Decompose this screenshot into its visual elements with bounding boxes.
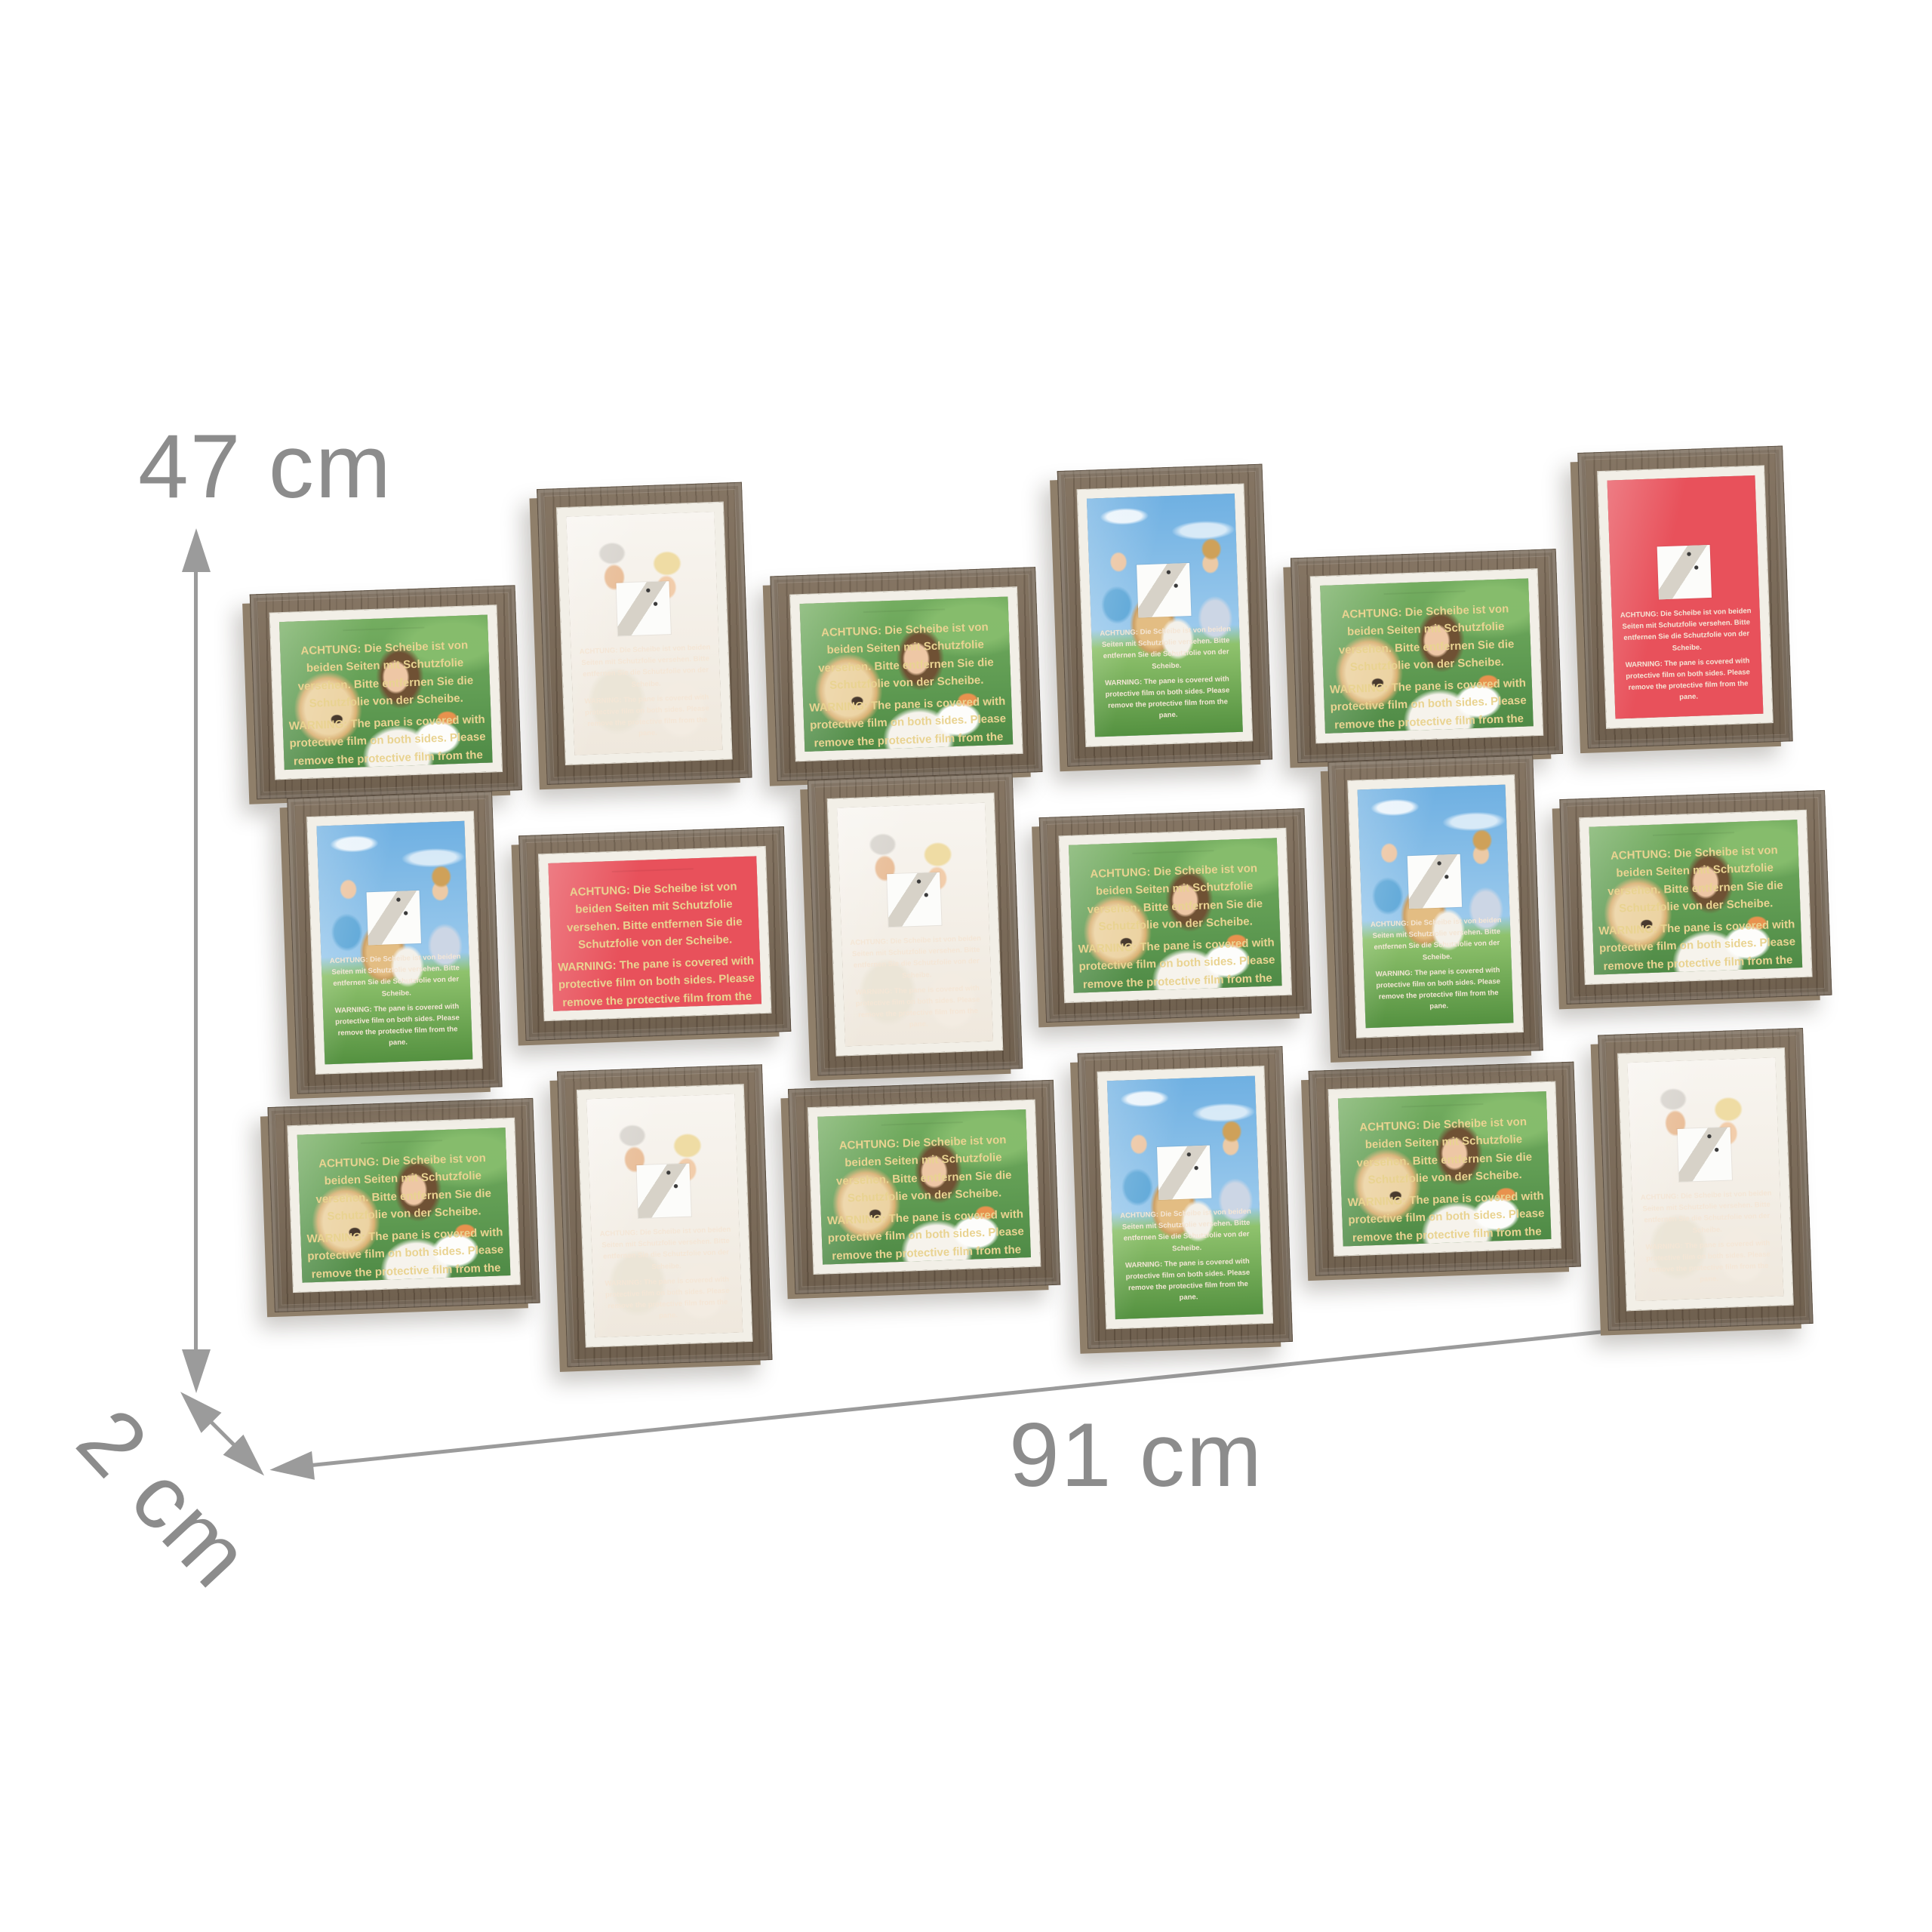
- paper-insert: [1678, 1128, 1732, 1182]
- frame-mat: ACHTUNG: Die Scheibe ist von beiden Seit…: [1598, 466, 1773, 728]
- frame-photo: ACHTUNG: Die Scheibe ist von beiden Seit…: [1338, 1091, 1552, 1247]
- frame-r3-c5-pets: ACHTUNG: Die Scheibe ist von beiden Seit…: [1309, 1062, 1581, 1276]
- paper-insert: [1133, 851, 1213, 854]
- frame-mat: ACHTUNG: Die Scheibe ist von beiden Seit…: [1311, 569, 1543, 743]
- paper-insert: [1654, 832, 1734, 835]
- frame-photo: ACHTUNG: Die Scheibe ist von beiden Seit…: [1358, 785, 1514, 1029]
- paper-insert: [887, 872, 941, 927]
- warning-text-en: WARNING: The pane is covered with protec…: [843, 982, 992, 1033]
- warning-text-de: ACHTUNG: Die Scheibe ist von beiden Seit…: [1590, 841, 1801, 918]
- frame-mat: ACHTUNG: Die Scheibe ist von beiden Seit…: [1328, 1082, 1560, 1256]
- frame-mat: ACHTUNG: Die Scheibe ist von beiden Seit…: [270, 605, 502, 779]
- frame-photo: ACHTUNG: Die Scheibe ist von beiden Seit…: [566, 512, 722, 755]
- frame-photo: ACHTUNG: Die Scheibe ist von beiden Seit…: [1627, 1057, 1783, 1301]
- warning-text-de: ACHTUNG: Die Scheibe ist von beiden Seit…: [1339, 1112, 1549, 1190]
- paper-insert: [1157, 1146, 1211, 1200]
- paper-insert: [361, 1140, 441, 1143]
- warning-text-en: WARNING: The pane is covered with protec…: [1614, 654, 1763, 706]
- warning-text-en: WARNING: The pane is covered with protec…: [1341, 1187, 1551, 1247]
- warning-text-de: ACHTUNG: Die Scheibe ist von beiden Seit…: [801, 617, 1011, 695]
- warning-text-en: WARNING: The pane is covered with protec…: [803, 692, 1013, 752]
- warning-insert: ACHTUNG: Die Scheibe ist von beiden Seit…: [1589, 820, 1803, 975]
- frame-r1-c1-pets: ACHTUNG: Die Scheibe ist von beiden Seit…: [250, 585, 522, 799]
- warning-text-en: WARNING: The pane is covered with protec…: [593, 1273, 743, 1324]
- frame-photo: ACHTUNG: Die Scheibe ist von beiden Seit…: [837, 803, 993, 1047]
- warning-text-en: WARNING: The pane is covered with protec…: [300, 1223, 510, 1283]
- warning-insert: ACHTUNG: Die Scheibe ist von beiden Seit…: [586, 1094, 743, 1338]
- frame-r2-c5-family: ACHTUNG: Die Scheibe ist von beiden Seit…: [1327, 755, 1543, 1057]
- frame-photo: ACHTUNG: Die Scheibe ist von beiden Seit…: [316, 821, 472, 1065]
- frame-r2-c2-red-insert: ACHTUNG: Die Scheibe ist von beiden Seit…: [518, 826, 791, 1041]
- warning-text-en: WARNING: The pane is covered with protec…: [1634, 1237, 1783, 1288]
- warning-text-en: WARNING: The pane is covered with protec…: [1072, 934, 1281, 993]
- frame-photo: ACHTUNG: Die Scheibe ist von beiden Seit…: [1320, 578, 1534, 734]
- frame-r1-c4-family: ACHTUNG: Die Scheibe ist von beiden Seit…: [1057, 464, 1273, 767]
- frame-r3-c2-couple: ACHTUNG: Die Scheibe ist von beiden Seit…: [557, 1064, 773, 1367]
- warning-insert: ACHTUNG: Die Scheibe ist von beiden Seit…: [837, 803, 993, 1047]
- frame-mat: ACHTUNG: Die Scheibe ist von beiden Seit…: [1618, 1048, 1793, 1310]
- warning-text-de: ACHTUNG: Die Scheibe ist von beiden Seit…: [280, 636, 491, 714]
- frame-r2-c3-couple: ACHTUNG: Die Scheibe ist von beiden Seit…: [808, 773, 1023, 1075]
- frame-photo: ACHTUNG: Die Scheibe ist von beiden Seit…: [297, 1128, 511, 1283]
- frame-r3-c6-couple: ACHTUNG: Die Scheibe ist von beiden Seit…: [1598, 1028, 1814, 1331]
- frame-r3-c1-pets: ACHTUNG: Die Scheibe ist von beiden Seit…: [267, 1098, 540, 1312]
- frame-photo: ACHTUNG: Die Scheibe ist von beiden Seit…: [1589, 820, 1803, 975]
- product-screenshot: 47 cm 2 cm 91 cm ACHTUNG: Die Scheibe is…: [0, 0, 1932, 1932]
- warning-text-en: WARNING: The pane is covered with protec…: [1364, 964, 1513, 1015]
- warning-text-de: ACHTUNG: Die Scheibe ist von beiden Seit…: [1112, 1205, 1261, 1257]
- collage-frame: ACHTUNG: Die Scheibe ist von beiden Seit…: [249, 445, 1841, 1378]
- frame-r2-c1-family: ACHTUNG: Die Scheibe ist von beiden Seit…: [287, 791, 503, 1094]
- frame-r3-c3-pets: ACHTUNG: Die Scheibe ist von beiden Seit…: [788, 1080, 1060, 1294]
- frame-r3-c4-family: ACHTUNG: Die Scheibe ist von beiden Seit…: [1078, 1046, 1294, 1349]
- frame-r1-c2-couple: ACHTUNG: Die Scheibe ist von beiden Seit…: [537, 482, 752, 785]
- warning-text-de: ACHTUNG: Die Scheibe ist von beiden Seit…: [841, 933, 991, 984]
- warning-insert: ACHTUNG: Die Scheibe ist von beiden Seit…: [800, 596, 1014, 752]
- warning-text-en: WARNING: The pane is covered with protec…: [1592, 915, 1802, 975]
- warning-text-en: WARNING: The pane is covered with protec…: [323, 1000, 472, 1051]
- paper-insert: [1657, 545, 1712, 599]
- warning-text-en: WARNING: The pane is covered with protec…: [821, 1205, 1031, 1265]
- warning-insert: ACHTUNG: Die Scheibe ist von beiden Seit…: [1107, 1075, 1263, 1319]
- paper-insert: [343, 628, 423, 631]
- frame-mat: ACHTUNG: Die Scheibe ist von beiden Seit…: [1078, 484, 1253, 746]
- frame-photo: ACHTUNG: Die Scheibe ist von beiden Seit…: [817, 1109, 1031, 1265]
- frame-r2-c6-pets: ACHTUNG: Die Scheibe ist von beiden Seit…: [1559, 790, 1832, 1004]
- warning-insert: ACHTUNG: Die Scheibe ist von beiden Seit…: [279, 615, 493, 771]
- warning-text-de: ACHTUNG: Die Scheibe ist von beiden Seit…: [1069, 859, 1280, 937]
- paper-insert: [636, 1164, 691, 1218]
- paper-insert: [367, 891, 421, 945]
- warning-insert: ACHTUNG: Die Scheibe ist von beiden Seit…: [548, 856, 761, 1011]
- frame-photo: ACHTUNG: Die Scheibe ist von beiden Seit…: [548, 856, 761, 1011]
- warning-text-de: ACHTUNG: Die Scheibe ist von beiden Seit…: [818, 1131, 1029, 1208]
- frame-mat: ACHTUNG: Die Scheibe ist von beiden Seit…: [1097, 1066, 1272, 1328]
- warning-text-de: ACHTUNG: Die Scheibe ist von beiden Seit…: [1091, 623, 1241, 675]
- warning-insert: ACHTUNG: Die Scheibe ist von beiden Seit…: [1087, 494, 1243, 737]
- warning-insert: ACHTUNG: Die Scheibe ist von beiden Seit…: [1607, 475, 1764, 719]
- paper-insert: [1402, 1104, 1482, 1107]
- paper-insert: [864, 609, 944, 612]
- frame-photo: ACHTUNG: Die Scheibe ist von beiden Seit…: [800, 596, 1014, 752]
- warning-insert: ACHTUNG: Die Scheibe ist von beiden Seit…: [1338, 1091, 1552, 1247]
- warning-insert: ACHTUNG: Die Scheibe ist von beiden Seit…: [1358, 785, 1514, 1029]
- height-dimension-arrow: [194, 571, 198, 1351]
- frame-photo: ACHTUNG: Die Scheibe ist von beiden Seit…: [1069, 838, 1282, 993]
- warning-text-de: ACHTUNG: Die Scheibe ist von beiden Seit…: [321, 951, 470, 1002]
- frame-photo: ACHTUNG: Die Scheibe ist von beiden Seit…: [1107, 1075, 1263, 1319]
- paper-insert: [616, 581, 670, 635]
- warning-text-de: ACHTUNG: Die Scheibe ist von beiden Seit…: [549, 877, 759, 955]
- warning-insert: ACHTUNG: Die Scheibe ist von beiden Seit…: [817, 1109, 1031, 1265]
- frame-r1-c5-pets: ACHTUNG: Die Scheibe ist von beiden Seit…: [1291, 549, 1563, 763]
- warning-insert: ACHTUNG: Die Scheibe ist von beiden Seit…: [566, 512, 722, 755]
- frame-mat: ACHTUNG: Die Scheibe ist von beiden Seit…: [1060, 829, 1291, 1002]
- frame-mat: ACHTUNG: Die Scheibe ist von beiden Seit…: [828, 793, 1003, 1055]
- frame-photo: ACHTUNG: Die Scheibe ist von beiden Seit…: [586, 1094, 743, 1338]
- frame-mat: ACHTUNG: Die Scheibe ist von beiden Seit…: [557, 503, 732, 764]
- warning-text-en: WARNING: The pane is covered with protec…: [573, 691, 722, 743]
- warning-insert: ACHTUNG: Die Scheibe ist von beiden Seit…: [297, 1128, 511, 1283]
- warning-text-de: ACHTUNG: Die Scheibe ist von beiden Seit…: [1362, 915, 1512, 966]
- warning-text-en: WARNING: The pane is covered with protec…: [552, 952, 761, 1011]
- depth-dimension-arrow: [209, 1420, 235, 1447]
- warning-insert: ACHTUNG: Die Scheibe ist von beiden Seit…: [1069, 838, 1282, 993]
- warning-insert: ACHTUNG: Die Scheibe ist von beiden Seit…: [1627, 1057, 1783, 1301]
- warning-insert: ACHTUNG: Die Scheibe ist von beiden Seit…: [316, 821, 472, 1065]
- depth-dimension-label: 2 cm: [62, 1393, 266, 1603]
- paper-insert: [1137, 563, 1191, 617]
- width-dimension-label: 91 cm: [1009, 1410, 1263, 1500]
- frame-photo: ACHTUNG: Die Scheibe ist von beiden Seit…: [1607, 475, 1764, 719]
- warning-text-en: WARNING: The pane is covered with protec…: [1324, 674, 1534, 734]
- warning-insert: ACHTUNG: Die Scheibe ist von beiden Seit…: [1320, 578, 1534, 734]
- warning-text-de: ACHTUNG: Die Scheibe ist von beiden Seit…: [298, 1149, 509, 1226]
- warning-text-en: WARNING: The pane is covered with protec…: [1093, 673, 1242, 724]
- frame-mat: ACHTUNG: Die Scheibe ist von beiden Seit…: [1348, 775, 1523, 1037]
- warning-text-de: ACHTUNG: Die Scheibe ist von beiden Seit…: [571, 641, 720, 693]
- warning-text-de: ACHTUNG: Die Scheibe ist von beiden Seit…: [591, 1223, 740, 1275]
- frame-r1-c3-pets: ACHTUNG: Die Scheibe ist von beiden Seit…: [770, 567, 1042, 781]
- warning-text-en: WARNING: The pane is covered with protec…: [282, 710, 492, 770]
- frame-r1-c6-red-insert: ACHTUNG: Die Scheibe ist von beiden Seit…: [1577, 446, 1793, 749]
- paper-insert: [613, 869, 693, 872]
- frame-r2-c4-pets: ACHTUNG: Die Scheibe ist von beiden Seit…: [1039, 808, 1312, 1023]
- frame-mat: ACHTUNG: Die Scheibe ist von beiden Seit…: [288, 1118, 519, 1292]
- warning-text-de: ACHTUNG: Die Scheibe ist von beiden Seit…: [1612, 605, 1761, 657]
- warning-text-de: ACHTUNG: Die Scheibe ist von beiden Seit…: [1632, 1187, 1781, 1238]
- frame-mat: ACHTUNG: Die Scheibe ist von beiden Seit…: [307, 811, 482, 1073]
- frame-photo: ACHTUNG: Die Scheibe ist von beiden Seit…: [1087, 494, 1243, 737]
- paper-insert: [1385, 591, 1465, 594]
- warning-text-de: ACHTUNG: Die Scheibe ist von beiden Seit…: [1321, 599, 1531, 677]
- frame-mat: ACHTUNG: Die Scheibe ist von beiden Seit…: [577, 1084, 752, 1346]
- frame-mat: ACHTUNG: Die Scheibe ist von beiden Seit…: [790, 587, 1022, 761]
- warning-text-en: WARNING: The pane is covered with protec…: [1113, 1255, 1263, 1306]
- paper-insert: [882, 1122, 962, 1125]
- frame-mat: ACHTUNG: Die Scheibe ist von beiden Seit…: [1580, 811, 1811, 984]
- frame-mat: ACHTUNG: Die Scheibe ist von beiden Seit…: [539, 847, 771, 1020]
- frame-mat: ACHTUNG: Die Scheibe ist von beiden Seit…: [808, 1100, 1040, 1274]
- paper-insert: [1407, 854, 1462, 909]
- frame-photo: ACHTUNG: Die Scheibe ist von beiden Seit…: [279, 615, 493, 771]
